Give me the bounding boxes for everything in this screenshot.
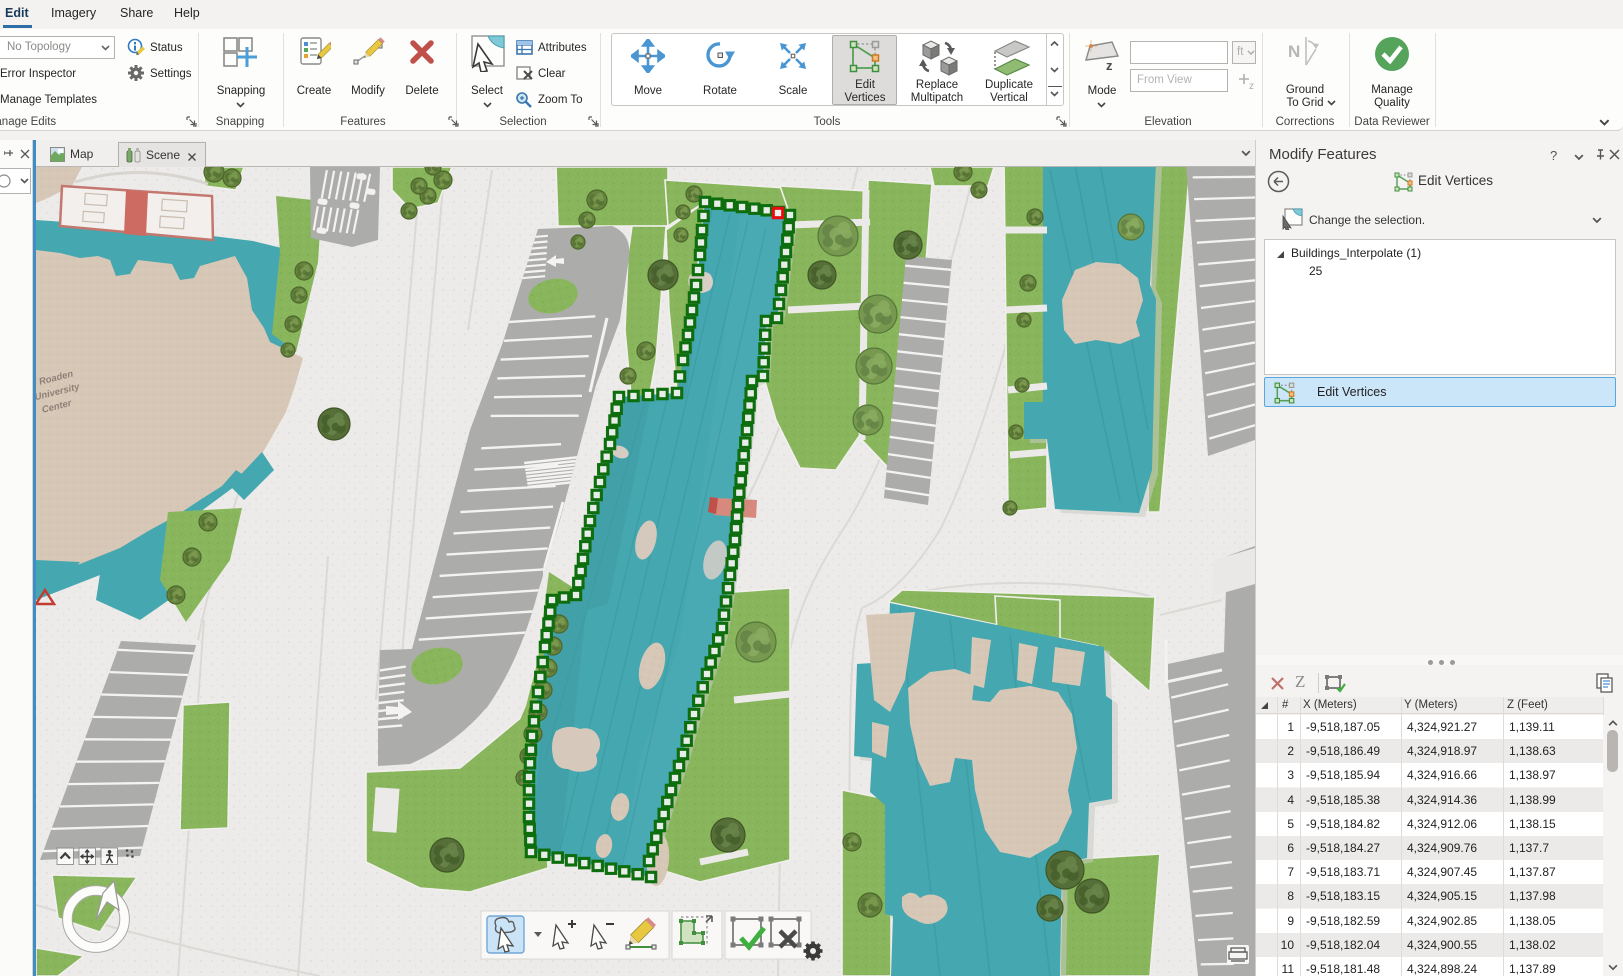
svg-text:z: z [1106,58,1113,73]
svg-text:z: z [1249,81,1254,92]
svg-text:N: N [1288,42,1300,61]
